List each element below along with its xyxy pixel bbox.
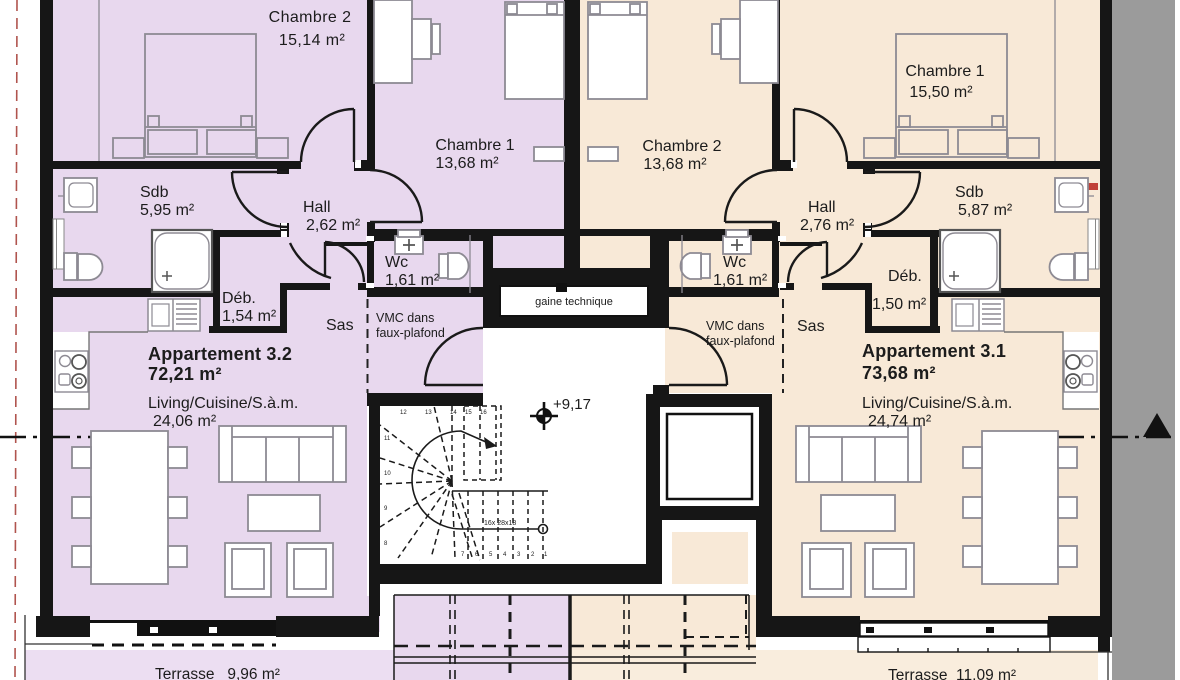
svg-text:2,76 m²: 2,76 m² bbox=[800, 217, 855, 234]
svg-text:11: 11 bbox=[384, 436, 391, 442]
svg-text:12: 12 bbox=[400, 410, 407, 416]
svg-text:Terrasse 9,96 m²: Terrasse 9,96 m² bbox=[155, 666, 280, 680]
svg-text:24,06 m²: 24,06 m² bbox=[153, 413, 217, 430]
svg-text:1,50 m²: 1,50 m² bbox=[872, 296, 927, 313]
svg-text:5,87 m²: 5,87 m² bbox=[958, 202, 1013, 219]
svg-text:Déb.: Déb. bbox=[888, 268, 922, 285]
svg-text:VMC dans: VMC dans bbox=[706, 319, 764, 333]
svg-text:16: 16 bbox=[480, 410, 487, 416]
svg-text:faux-plafond: faux-plafond bbox=[706, 334, 775, 348]
svg-text:Sdb: Sdb bbox=[140, 184, 169, 201]
svg-text:Sdb: Sdb bbox=[955, 184, 984, 201]
svg-text:1,61 m²: 1,61 m² bbox=[385, 272, 440, 289]
svg-text:73,68 m²: 73,68 m² bbox=[862, 363, 936, 383]
svg-text:Sas: Sas bbox=[797, 318, 825, 335]
svg-text:10: 10 bbox=[384, 471, 391, 477]
svg-text:15: 15 bbox=[465, 410, 472, 416]
svg-text:Hall: Hall bbox=[808, 199, 836, 216]
svg-text:Living/Cuisine/S.à.m.: Living/Cuisine/S.à.m. bbox=[148, 395, 298, 412]
svg-text:+9,17: +9,17 bbox=[553, 396, 591, 413]
svg-text:Sas: Sas bbox=[326, 317, 354, 334]
svg-text:16x 28x18: 16x 28x18 bbox=[484, 520, 516, 527]
svg-text:Chambre 2: Chambre 2 bbox=[269, 9, 352, 26]
svg-text:Appartement 3.2: Appartement 3.2 bbox=[148, 344, 292, 364]
svg-text:24,74 m²: 24,74 m² bbox=[868, 413, 932, 430]
svg-text:13,68 m²: 13,68 m² bbox=[435, 155, 499, 172]
svg-text:Wc: Wc bbox=[385, 254, 408, 271]
svg-text:Wc: Wc bbox=[723, 254, 746, 271]
svg-text:72,21 m²: 72,21 m² bbox=[148, 364, 222, 384]
svg-text:13,68 m²: 13,68 m² bbox=[643, 156, 707, 173]
svg-text:Déb.: Déb. bbox=[222, 290, 256, 307]
svg-text:VMC dans: VMC dans bbox=[376, 311, 434, 325]
svg-text:1,54 m²: 1,54 m² bbox=[222, 308, 277, 325]
svg-text:Living/Cuisine/S.à.m.: Living/Cuisine/S.à.m. bbox=[862, 395, 1012, 412]
svg-text:Appartement 3.1: Appartement 3.1 bbox=[862, 341, 1006, 361]
svg-text:15,14 m²: 15,14 m² bbox=[279, 32, 346, 49]
svg-text:Chambre 1: Chambre 1 bbox=[905, 63, 984, 80]
svg-text:Hall: Hall bbox=[303, 199, 331, 216]
svg-text:15,50 m²: 15,50 m² bbox=[909, 84, 973, 101]
svg-text:5,95 m²: 5,95 m² bbox=[140, 202, 195, 219]
svg-text:Chambre 1: Chambre 1 bbox=[435, 137, 514, 154]
svg-text:13: 13 bbox=[425, 410, 432, 416]
svg-text:2,62 m²: 2,62 m² bbox=[306, 217, 361, 234]
svg-text:gaine technique: gaine technique bbox=[535, 296, 613, 308]
svg-text:14: 14 bbox=[450, 410, 457, 416]
svg-text:Chambre 2: Chambre 2 bbox=[642, 138, 721, 155]
svg-text:faux-plafond: faux-plafond bbox=[376, 326, 445, 340]
svg-text:1,61 m²: 1,61 m² bbox=[713, 272, 768, 289]
svg-text:Terrasse 11,09 m²: Terrasse 11,09 m² bbox=[888, 667, 1016, 680]
